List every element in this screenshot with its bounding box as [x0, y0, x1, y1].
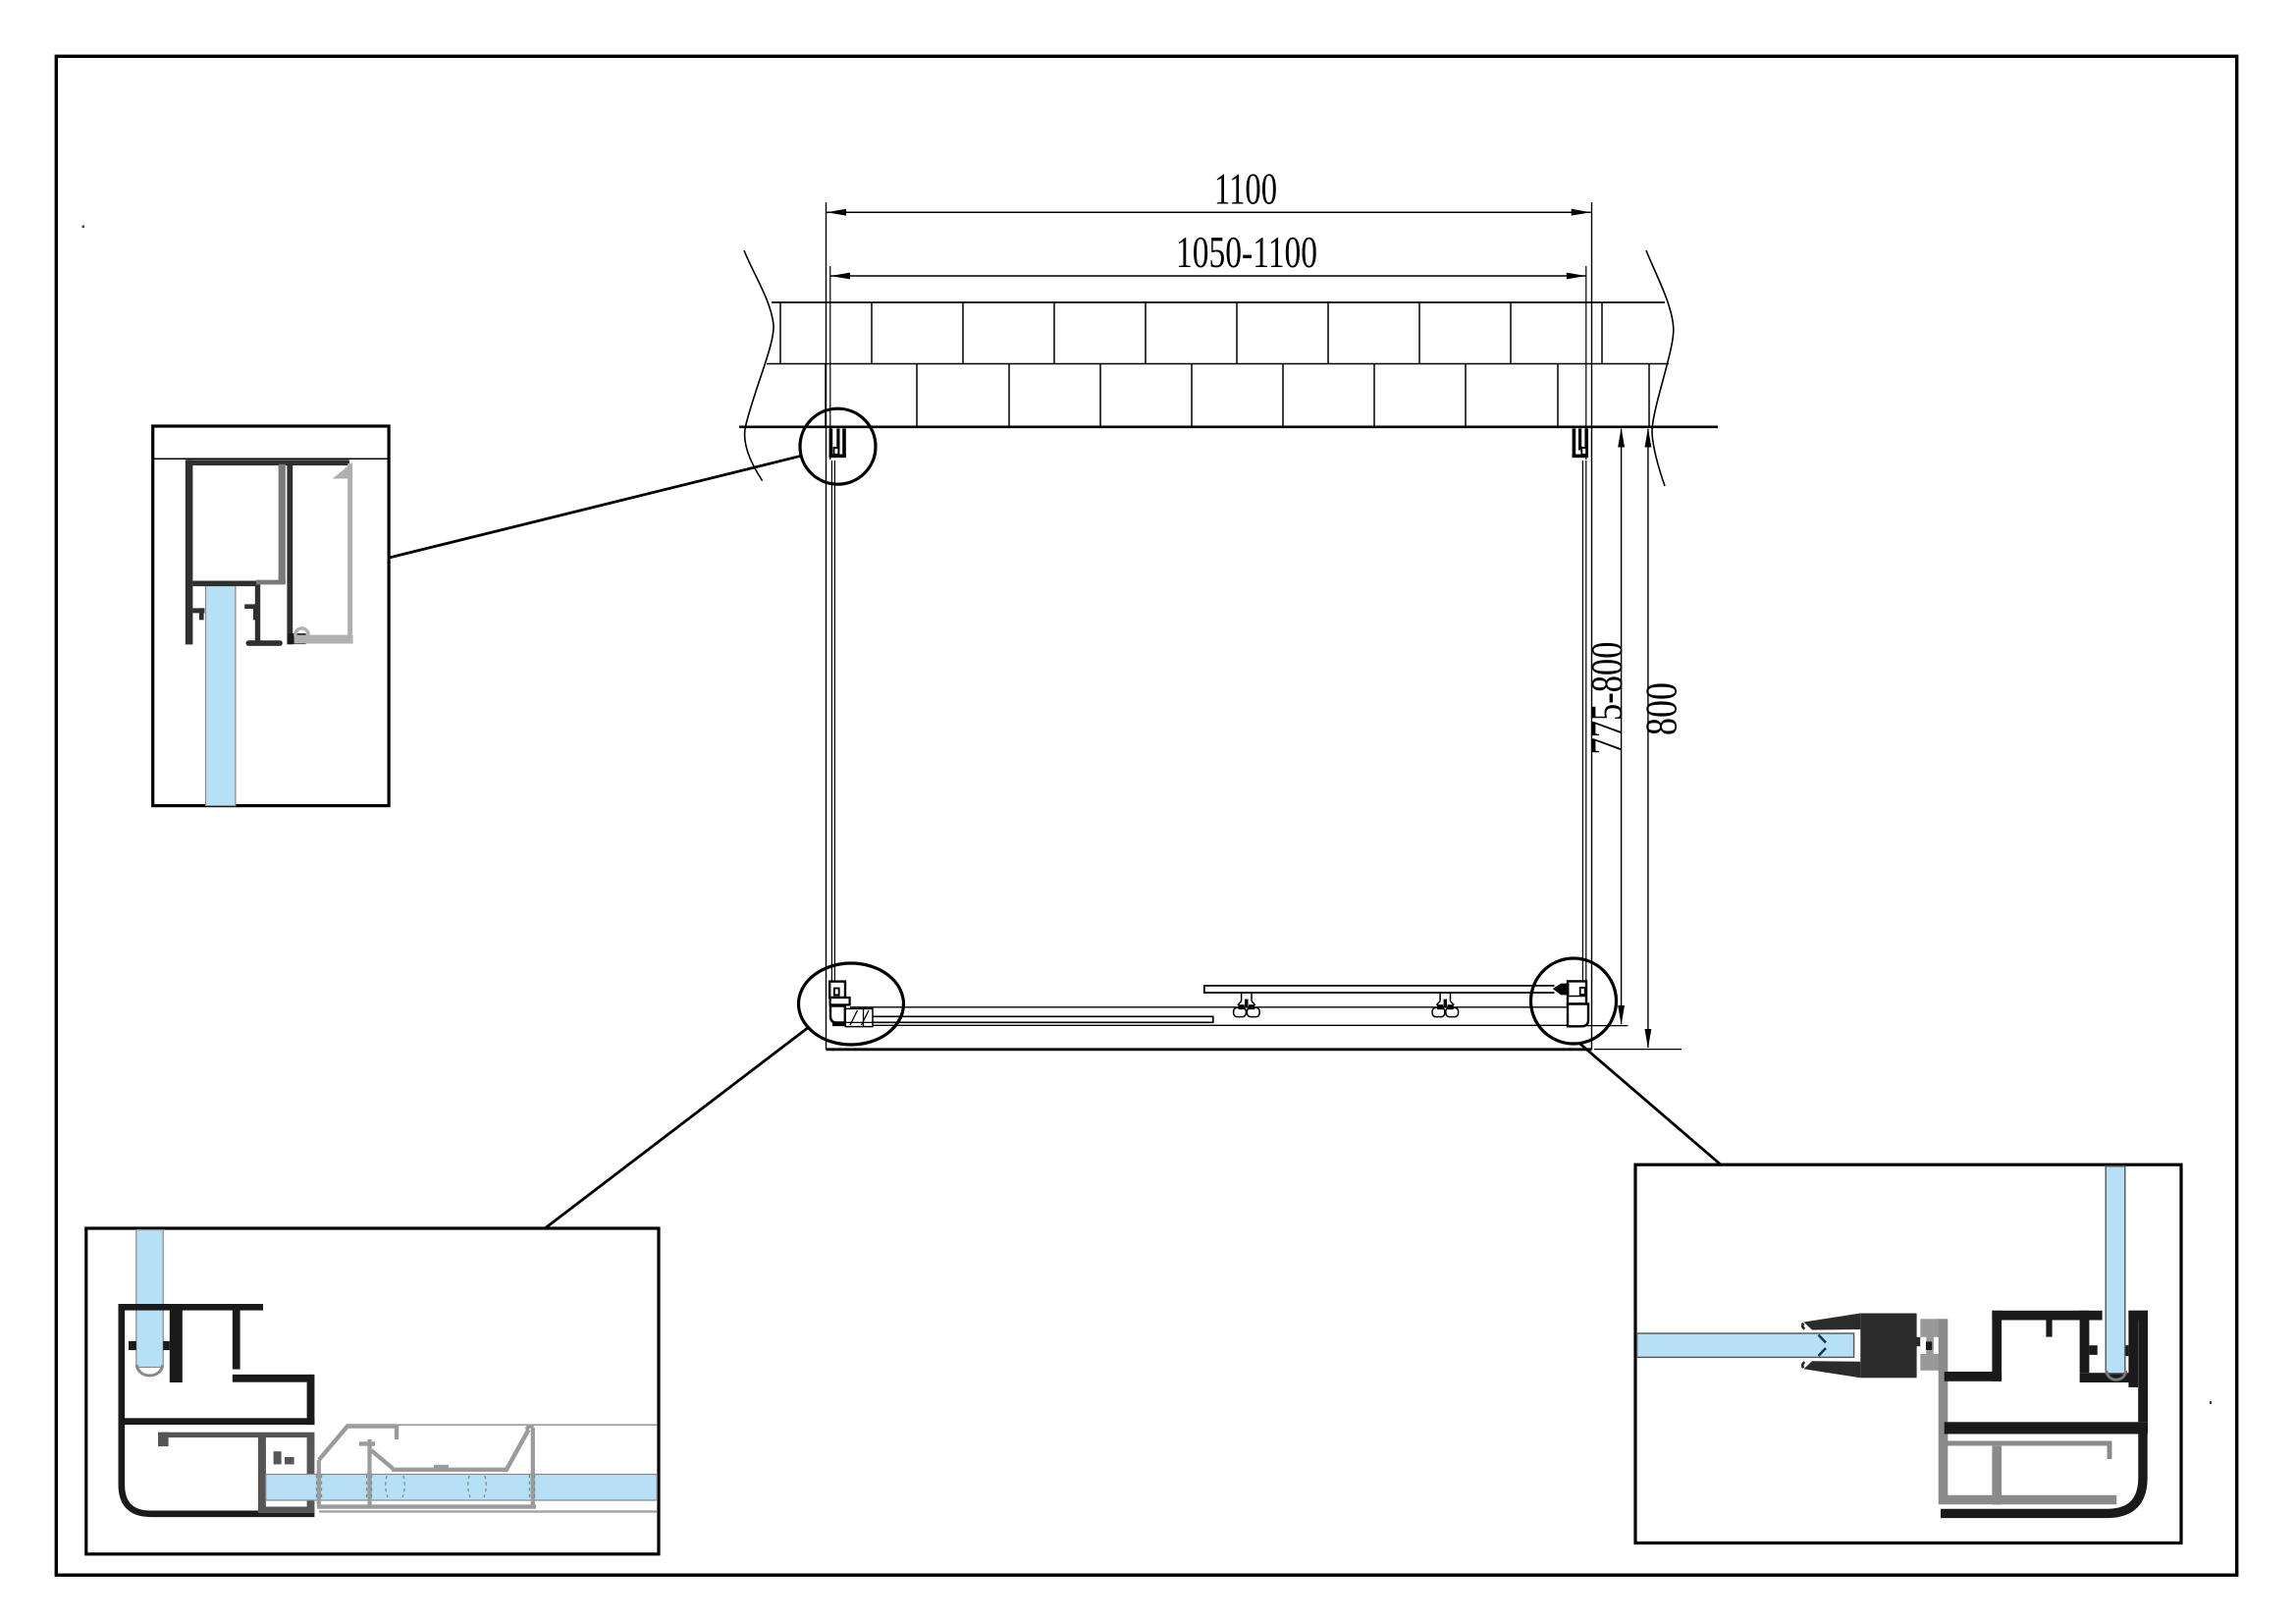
- svg-text:1100: 1100: [1214, 164, 1277, 214]
- svg-text:1050-1100: 1050-1100: [1176, 227, 1317, 277]
- svg-text:775-800: 775-800: [1581, 642, 1631, 755]
- svg-text:800: 800: [1636, 682, 1686, 735]
